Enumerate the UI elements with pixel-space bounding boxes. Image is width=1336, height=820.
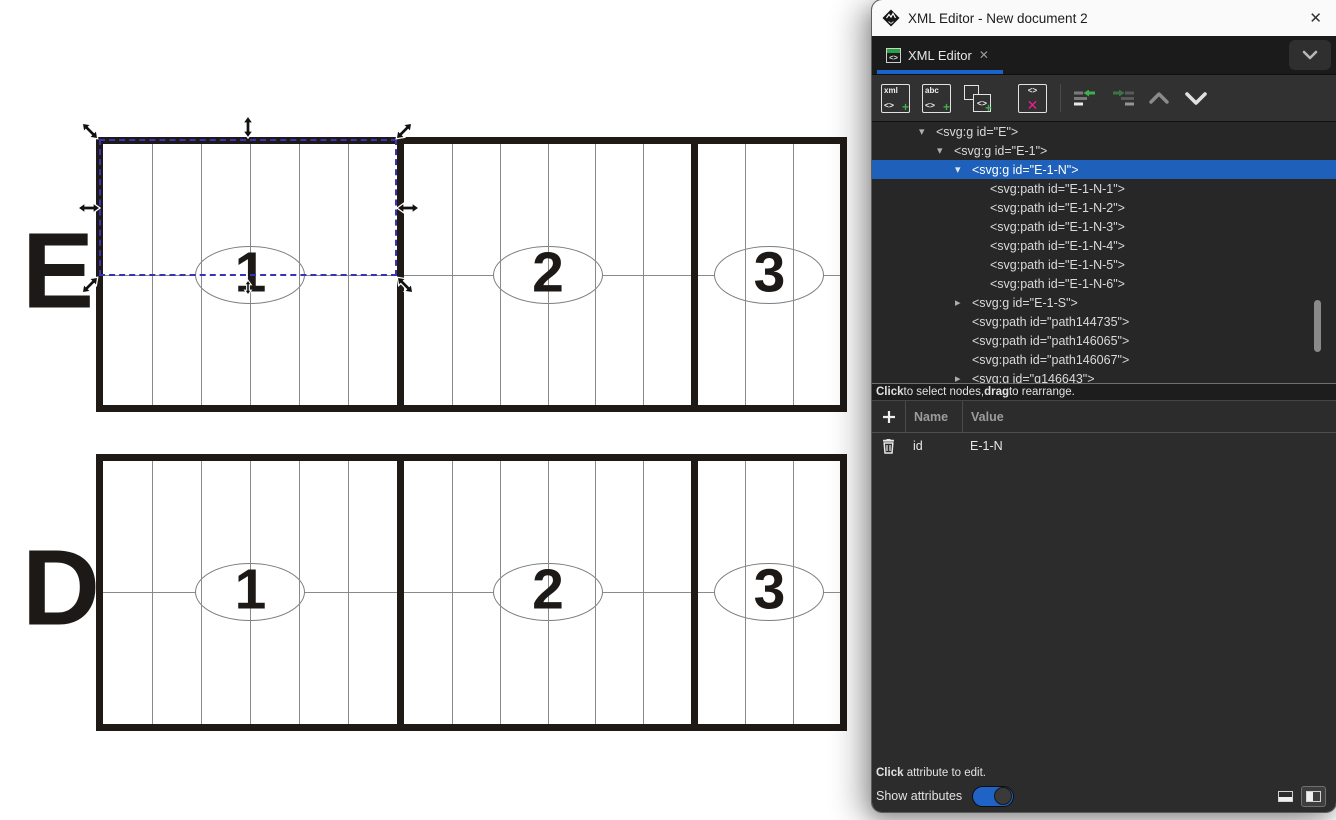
section-divider — [691, 137, 698, 412]
new-element-node-button[interactable]: xml <> + — [881, 84, 910, 113]
section-gridline — [793, 461, 794, 724]
delete-node-icon: <> — [1019, 86, 1046, 95]
section-divider — [397, 454, 404, 731]
attr-column-value: Value — [963, 401, 1336, 432]
expander-open-icon[interactable]: ▾ — [937, 144, 954, 157]
plus-icon — [882, 410, 896, 424]
tree-hint-text: Click to select nodes, drag to rearrange… — [872, 383, 1336, 401]
xml-node-text: <svg:g id="E-1"> — [954, 144, 1047, 158]
move-node-up-button[interactable] — [1146, 85, 1172, 111]
new-text-node-button[interactable]: abc <> + — [922, 84, 951, 113]
scale-handle-bottom-center-icon[interactable] — [242, 280, 255, 296]
section-gridline — [745, 144, 746, 405]
attr-column-name: Name — [906, 401, 963, 432]
section-number: 2 — [532, 239, 563, 305]
row-label-D: D — [22, 534, 100, 642]
dialog-close-icon[interactable]: ✕ — [1307, 9, 1324, 27]
section-number: 2 — [532, 556, 563, 622]
duplicate-node-button[interactable]: <> + — [963, 84, 992, 113]
xml-node-text: <svg:g id="E"> — [936, 125, 1018, 139]
section-gridline — [643, 461, 644, 724]
section-gridline — [793, 144, 794, 405]
xml-node-tree[interactable]: ▾<svg:g id="E">▾<svg:g id="E-1">▾<svg:g … — [872, 121, 1336, 383]
layout-horizontal-button[interactable] — [1273, 786, 1298, 807]
xml-node-text: <svg:path id="E-1-N-2"> — [990, 201, 1125, 215]
xml-node-text: <svg:path id="path146067"> — [972, 353, 1129, 367]
trash-icon — [882, 439, 895, 454]
xml-node-text: <svg:path id="E-1-N-1"> — [990, 182, 1125, 196]
toggle-knob — [994, 787, 1012, 805]
unindent-node-icon — [1074, 90, 1097, 107]
tree-scrollbar-thumb[interactable] — [1314, 300, 1321, 352]
scale-handle-right-middle-icon[interactable] — [396, 199, 420, 217]
xml-editor-tab-icon: <> — [886, 48, 901, 63]
xml-tree-node[interactable]: ▸<svg:g id="g146643"> — [872, 369, 1336, 383]
attribute-name[interactable]: id — [905, 439, 962, 453]
toolbar-separator — [1060, 84, 1061, 112]
expander-closed-icon[interactable]: ▸ — [955, 296, 972, 309]
scale-handle-top-center-icon[interactable] — [239, 115, 257, 139]
indent-node-button[interactable] — [1109, 85, 1135, 111]
attributes-header: Name Value — [872, 401, 1336, 433]
xml-node-text: <svg:path id="path146065"> — [972, 334, 1129, 348]
new-element-node-icon: xml — [884, 86, 898, 95]
tab-label: XML Editor — [908, 48, 972, 63]
xml-tree-node[interactable]: ▾<svg:g id="E"> — [872, 122, 1336, 141]
section-gridline — [152, 461, 153, 724]
xml-tree-node[interactable]: <svg:path id="path146065"> — [872, 331, 1336, 350]
attribute-hint-text: Click attribute to edit. — [872, 765, 1336, 782]
panel-tabbar: <> XML Editor ✕ — [872, 36, 1336, 74]
indent-node-icon — [1111, 90, 1134, 107]
section-number: 3 — [754, 556, 785, 622]
section-gridline — [745, 461, 746, 724]
layout-horizontal-icon — [1278, 791, 1293, 802]
row-label-E: E — [22, 217, 94, 325]
attribute-row[interactable]: id E-1-N — [872, 433, 1336, 459]
xml-tree-node[interactable]: <svg:path id="path144735"> — [872, 312, 1336, 331]
selection-dashed-rect — [99, 139, 397, 276]
xml-tree-node[interactable]: <svg:path id="E-1-N-2"> — [872, 198, 1336, 217]
inkscape-logo-icon — [882, 9, 900, 27]
section-gridline — [299, 461, 300, 724]
section-gridline — [643, 144, 644, 405]
xml-tree-node[interactable]: <svg:path id="E-1-N-1"> — [872, 179, 1336, 198]
xml-tree-node[interactable]: ▾<svg:g id="E-1-N"> — [872, 160, 1336, 179]
section-gridline — [595, 144, 596, 405]
xml-toolbar: xml <> + abc <> + <> + <> ✕ — [872, 74, 1336, 121]
expander-open-icon[interactable]: ▾ — [919, 125, 936, 138]
active-tab-indicator — [877, 70, 1003, 74]
section-gridline — [452, 461, 453, 724]
unindent-node-button[interactable] — [1072, 85, 1098, 111]
section-gridline — [348, 461, 349, 724]
xml-tree-node[interactable]: ▾<svg:g id="E-1"> — [872, 141, 1336, 160]
chevron-down-icon — [1185, 92, 1207, 105]
xml-node-text: <svg:path id="E-1-N-5"> — [990, 258, 1125, 272]
move-node-down-button[interactable] — [1183, 85, 1209, 111]
xml-node-text: <svg:path id="path144735"> — [972, 315, 1129, 329]
expander-open-icon[interactable]: ▾ — [955, 163, 972, 176]
chevron-down-icon — [1302, 50, 1318, 60]
chevron-up-icon — [1149, 92, 1169, 104]
section-gridline — [500, 461, 501, 724]
section-gridline — [201, 461, 202, 724]
add-attribute-button[interactable] — [872, 401, 906, 432]
section-number: 3 — [754, 239, 785, 305]
xml-node-text: <svg:g id="E-1-N"> — [972, 163, 1079, 177]
layout-vertical-button[interactable] — [1301, 786, 1326, 807]
xml-tree-node[interactable]: <svg:path id="E-1-N-5"> — [872, 255, 1336, 274]
section-gridline — [500, 144, 501, 405]
xml-editor-dialog: XML Editor - New document 2 ✕ <> XML Edi… — [872, 0, 1336, 812]
section-gridline — [595, 461, 596, 724]
tab-close-icon[interactable]: ✕ — [979, 48, 989, 62]
xml-tree-node[interactable]: <svg:path id="E-1-N-6"> — [872, 274, 1336, 293]
scale-handle-left-middle-icon[interactable] — [77, 199, 101, 217]
tab-xml-editor[interactable]: <> XML Editor ✕ — [872, 36, 999, 74]
xml-node-text: <svg:path id="E-1-N-4"> — [990, 239, 1125, 253]
xml-tree-node[interactable]: ▸<svg:g id="E-1-S"> — [872, 293, 1336, 312]
layout-vertical-icon — [1306, 791, 1321, 802]
expander-closed-icon[interactable]: ▸ — [955, 372, 972, 383]
attributes-empty-area — [872, 459, 1336, 765]
tab-menu-button[interactable] — [1289, 40, 1331, 70]
dialog-title: XML Editor - New document 2 — [908, 11, 1307, 26]
section-gridline — [452, 144, 453, 405]
xml-node-text: <svg:g id="E-1-S"> — [972, 296, 1078, 310]
new-text-node-icon: abc — [925, 86, 939, 95]
xml-tree-node[interactable]: <svg:path id="path146067"> — [872, 350, 1336, 369]
xml-tree-node[interactable]: <svg:path id="E-1-N-4"> — [872, 236, 1336, 255]
xml-tree-node[interactable]: <svg:path id="E-1-N-3"> — [872, 217, 1336, 236]
attribute-value[interactable]: E-1-N — [962, 439, 1336, 453]
section-divider — [691, 454, 698, 731]
dialog-titlebar[interactable]: XML Editor - New document 2 ✕ — [872, 0, 1336, 36]
xml-node-text: <svg:path id="E-1-N-6"> — [990, 277, 1125, 291]
show-attributes-toggle[interactable] — [972, 786, 1014, 807]
show-attributes-label: Show attributes — [876, 789, 962, 803]
section-number: 1 — [235, 556, 266, 622]
delete-node-button[interactable]: <> ✕ — [1018, 84, 1047, 113]
xml-node-text: <svg:g id="g146643"> — [972, 372, 1095, 384]
delete-attribute-button[interactable] — [872, 439, 905, 454]
xml-node-text: <svg:path id="E-1-N-3"> — [990, 220, 1125, 234]
panel-footer: Show attributes — [872, 782, 1336, 812]
